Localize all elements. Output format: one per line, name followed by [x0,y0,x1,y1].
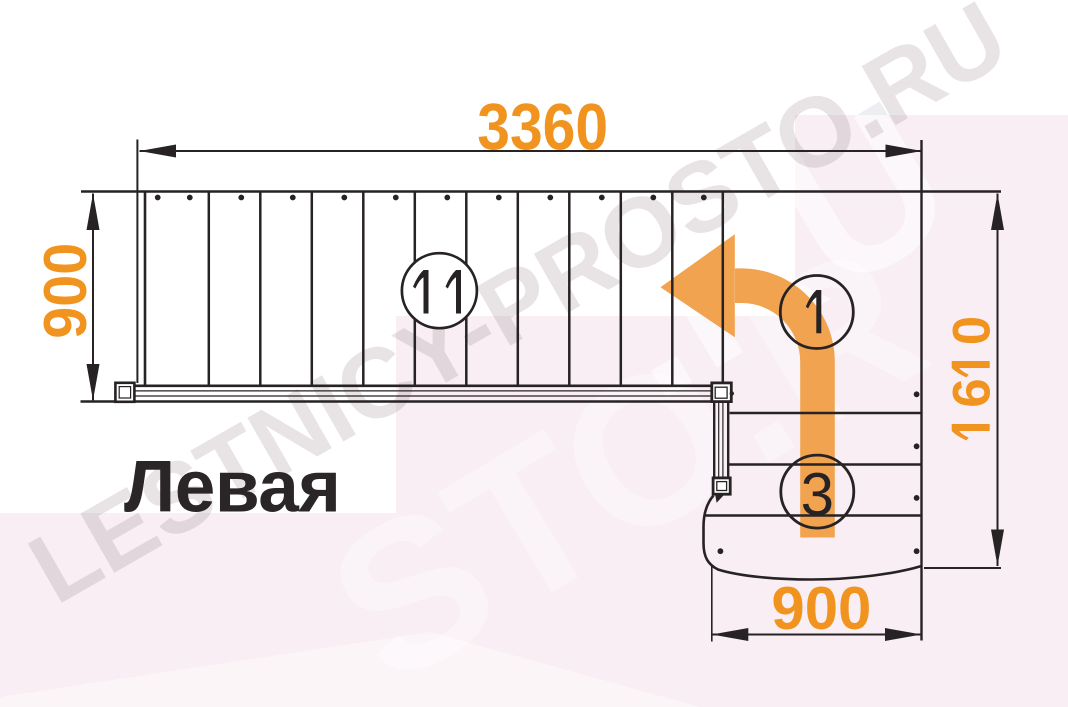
svg-text:3360: 3360 [477,90,608,164]
svg-text:0: 0 [943,316,1002,345]
svg-text:3: 3 [801,461,834,528]
svg-text:6: 6 [943,378,1002,407]
svg-text:900: 900 [32,243,99,339]
svg-text:Левая: Левая [124,447,340,528]
svg-text:900: 900 [771,575,871,642]
